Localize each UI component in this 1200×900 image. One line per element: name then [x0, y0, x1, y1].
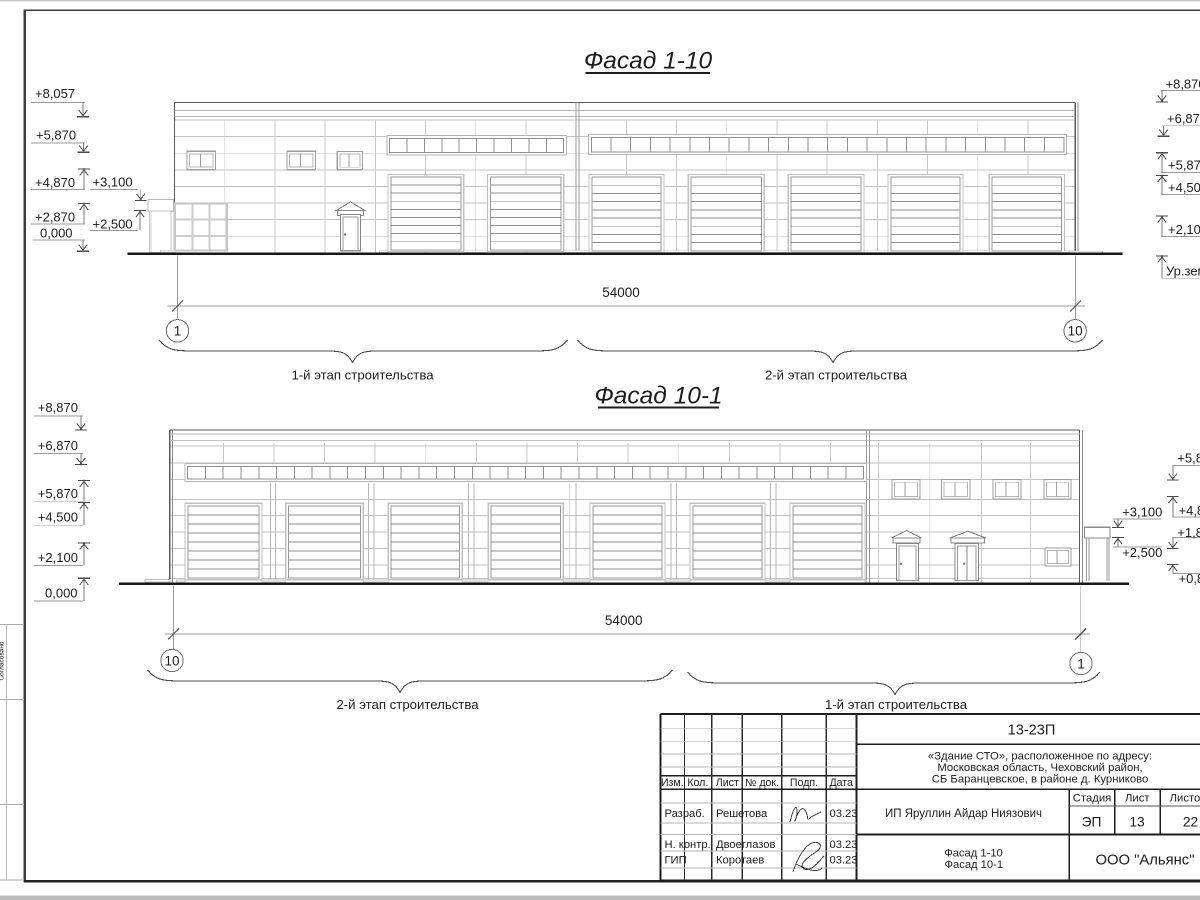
svg-text:+3,100: +3,100 — [93, 175, 133, 190]
svg-text:+4,870: +4,870 — [1179, 503, 1200, 518]
svg-text:Разраб.: Разраб. — [665, 808, 705, 820]
svg-text:2-й этап строительства: 2-й этап строительства — [765, 368, 908, 383]
svg-text:+2,100: +2,100 — [38, 550, 78, 565]
svg-text:ЭП: ЭП — [1082, 815, 1102, 830]
svg-text:0,000: 0,000 — [40, 226, 73, 241]
svg-text:ИП Яруллин Айдар Ниязович: ИП Яруллин Айдар Ниязович — [885, 808, 1042, 820]
svg-text:2-й этап строительства: 2-й этап строительства — [336, 697, 479, 712]
svg-text:+6,870: +6,870 — [1167, 111, 1200, 126]
svg-text:54000: 54000 — [605, 613, 643, 628]
svg-text:+2,870: +2,870 — [35, 209, 75, 224]
svg-text:+0,800: +0,800 — [1179, 571, 1200, 586]
svg-text:Ур.земли: Ур.земли — [1166, 264, 1200, 279]
svg-text:№ док.: № док. — [745, 777, 779, 789]
svg-text:03.23: 03.23 — [830, 808, 858, 820]
svg-text:Кол.: Кол. — [687, 777, 708, 789]
svg-text:+6,870: +6,870 — [38, 438, 78, 453]
svg-text:Согласовано: Согласовано — [0, 641, 6, 680]
svg-text:Стадия: Стадия — [1073, 792, 1112, 804]
svg-text:+5,870: +5,870 — [38, 486, 78, 501]
svg-text:Коротаев: Коротаев — [716, 854, 764, 866]
svg-text:13: 13 — [1129, 815, 1145, 830]
svg-text:03.23: 03.23 — [830, 839, 858, 851]
svg-text:Решетова: Решетова — [716, 808, 768, 820]
svg-text:Подп.: Подп. — [790, 777, 818, 789]
svg-text:+8,057: +8,057 — [35, 86, 75, 101]
svg-text:54000: 54000 — [602, 285, 640, 300]
svg-text:+5,870: +5,870 — [1177, 451, 1200, 466]
svg-text:СБ Баранцевское, в районе д. К: СБ Баранцевское, в районе д. Курниково — [932, 774, 1149, 786]
svg-text:Фасад 10-1: Фасад 10-1 — [945, 859, 1004, 871]
svg-text:Изм.: Изм. — [661, 777, 684, 789]
svg-text:Лист: Лист — [1125, 792, 1150, 804]
svg-text:10: 10 — [164, 653, 179, 668]
svg-text:Лист: Лист — [716, 777, 739, 789]
svg-text:+4,500: +4,500 — [1168, 180, 1200, 195]
svg-text:0,000: 0,000 — [45, 585, 78, 600]
svg-text:+1,800: +1,800 — [1177, 525, 1200, 540]
svg-text:1-й этап строительства: 1-й этап строительства — [291, 368, 434, 383]
svg-text:+5,870: +5,870 — [36, 128, 76, 143]
svg-text:1: 1 — [1077, 656, 1085, 671]
svg-text:+3,100: +3,100 — [1122, 504, 1162, 519]
svg-text:+4,500: +4,500 — [38, 510, 78, 525]
svg-text:ООО "Альянс": ООО "Альянс" — [1096, 852, 1195, 868]
svg-text:+4,870: +4,870 — [35, 175, 75, 190]
svg-text:13-23П: 13-23П — [1008, 722, 1056, 738]
svg-text:Листов: Листов — [1170, 792, 1200, 804]
svg-text:ГИП: ГИП — [665, 854, 687, 866]
svg-text:Московская область, Чеховский: Московская область, Чеховский район, — [937, 762, 1142, 774]
svg-text:+2,500: +2,500 — [93, 216, 133, 231]
svg-text:22: 22 — [1183, 815, 1198, 830]
svg-text:Фасад 10-1: Фасад 10-1 — [594, 383, 722, 410]
svg-text:+2,100: +2,100 — [1168, 222, 1200, 237]
svg-text:+8,870: +8,870 — [1166, 77, 1200, 92]
svg-text:03.23: 03.23 — [830, 854, 858, 866]
svg-text:Н. контр.: Н. контр. — [665, 839, 711, 851]
svg-text:Фасад 1-10: Фасад 1-10 — [584, 48, 713, 75]
svg-text:«Здание СТО», расположенное по: «Здание СТО», расположенное по адресу: — [928, 750, 1152, 762]
svg-text:1: 1 — [174, 324, 182, 339]
svg-text:+8,870: +8,870 — [38, 400, 78, 415]
svg-text:+2,500: +2,500 — [1122, 545, 1162, 560]
svg-text:Фасад 1-10: Фасад 1-10 — [944, 848, 1003, 860]
svg-text:1-й этап строительства: 1-й этап строительства — [825, 697, 968, 712]
svg-text:10: 10 — [1068, 324, 1083, 339]
svg-text:Дата: Дата — [829, 777, 853, 789]
svg-text:+5,870: +5,870 — [1168, 158, 1200, 173]
svg-text:Двоеглазов: Двоеглазов — [716, 839, 776, 851]
